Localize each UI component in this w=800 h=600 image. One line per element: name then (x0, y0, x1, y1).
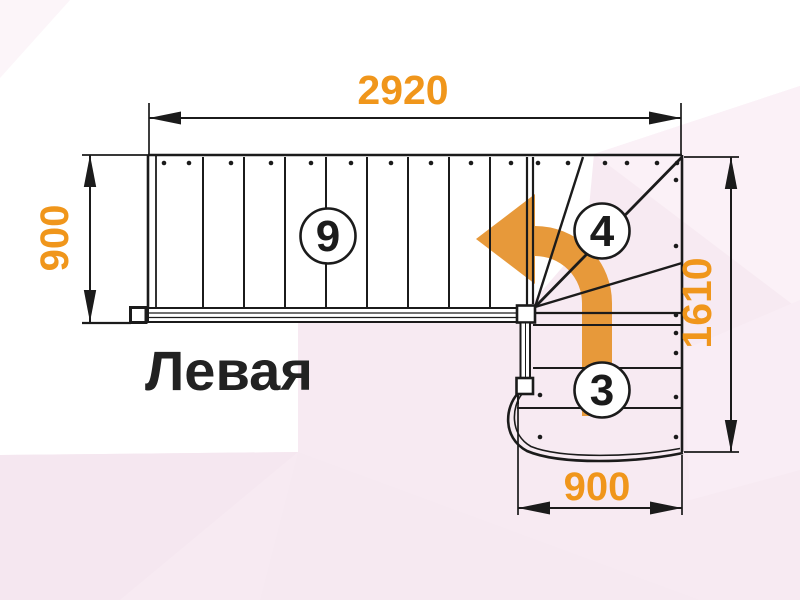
newel-post-winder (517, 306, 535, 323)
dim-bottom-value: 900 (564, 465, 631, 509)
newel-post-top (131, 308, 147, 323)
staircase-plan-drawing: 9 4 3 2920 900 1610 900 Ле (0, 0, 800, 600)
dimension-left: 900 (33, 155, 152, 323)
straight-flight-count: 9 (316, 212, 340, 261)
dim-right-value: 1610 (674, 257, 720, 348)
lower-flight-count: 3 (590, 366, 614, 415)
dim-top-value: 2920 (357, 67, 448, 113)
dim-left-value: 900 (33, 205, 77, 272)
handrail-top-flight (148, 308, 518, 322)
staircase-plan-page: 9 4 3 2920 900 1610 900 Ле (0, 0, 800, 600)
dimension-top: 2920 (149, 67, 681, 155)
newel-post-bottom (517, 378, 534, 394)
straight-flight-treads (203, 157, 533, 308)
plan-name-label: Левая (145, 339, 313, 402)
winder-count: 4 (590, 207, 615, 256)
